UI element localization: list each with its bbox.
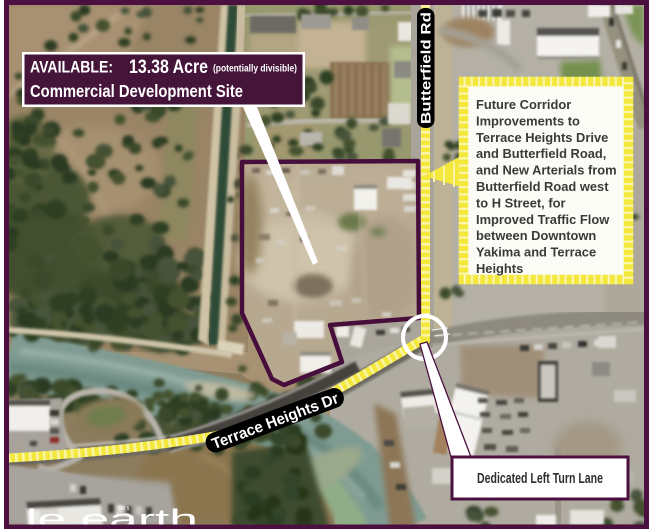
- svg-text:FM 5: FM 5: [118, 506, 130, 512]
- svg-text:Yakima and Terrace: Yakima and Terrace: [476, 245, 596, 260]
- svg-text:TurCft: TurCft: [116, 513, 130, 519]
- svg-text:between Downtown: between Downtown: [476, 228, 596, 243]
- svg-text:Improved Traffic Flow: Improved Traffic Flow: [476, 212, 610, 227]
- svg-text:and New Arterials from: and New Arterials from: [476, 163, 617, 178]
- svg-text:(potentially divisible): (potentially divisible): [213, 64, 297, 75]
- svg-text:Butterfield Road west: Butterfield Road west: [476, 179, 609, 194]
- svg-text:Commercial Development Site: Commercial Development Site: [30, 81, 243, 101]
- svg-text:and Butterfield Road,: and Butterfield Road,: [476, 146, 606, 161]
- svg-text:Heights: Heights: [476, 261, 523, 276]
- svg-text:Terrace Heights Drive: Terrace Heights Drive: [476, 130, 608, 145]
- svg-text:to H Street, for: to H Street, for: [476, 195, 566, 210]
- svg-text:AVAILABLE:: AVAILABLE:: [30, 59, 113, 77]
- svg-text:Butterfield Rd: Butterfield Rd: [418, 12, 434, 124]
- svg-text:13.38 Acre: 13.38 Acre: [129, 57, 208, 78]
- svg-text:Dedicated Left Turn Lane: Dedicated Left Turn Lane: [477, 471, 603, 487]
- svg-text:Improvements to: Improvements to: [476, 113, 580, 128]
- svg-text:Future Corridor: Future Corridor: [476, 97, 571, 112]
